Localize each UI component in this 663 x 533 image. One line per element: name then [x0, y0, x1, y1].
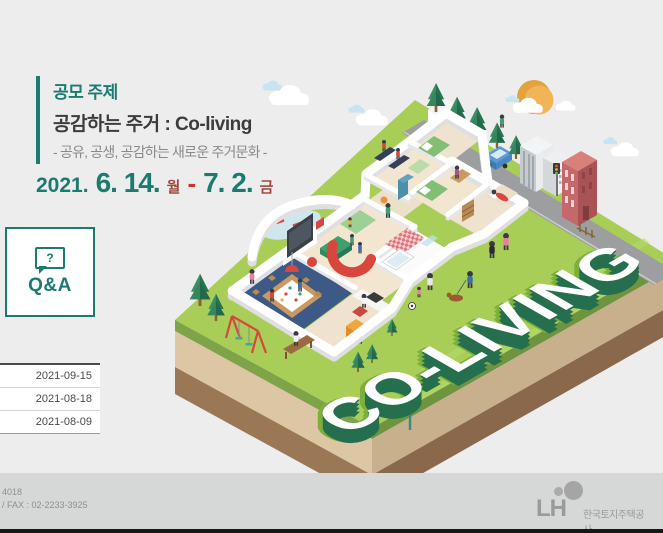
contest-subtitle: - 공유, 공생, 공감하는 새로운 주거문화 - [53, 142, 267, 162]
period-start-day: 월 [167, 176, 181, 197]
notice-row[interactable]: 2021-08-09 [0, 411, 100, 433]
lh-logo-text: LH [536, 495, 566, 523]
footer-contact: 4018 / FAX : 02-2233-3925 [2, 486, 88, 512]
contest-title: 공감하는 주거 : Co-living [53, 109, 267, 136]
lh-logo: LH 한국토지주택공사 [536, 479, 651, 525]
qa-button[interactable]: ? Q&A [5, 227, 95, 317]
coliving-poster-page: CO-LIVING [0, 0, 663, 533]
qa-button-label: Q&A [28, 275, 72, 297]
period-dash: - [187, 168, 196, 199]
question-bubble-icon: ? [35, 247, 65, 269]
lh-circles-icon [564, 481, 583, 500]
notice-date-list: 2021-09-15 2021-08-18 2021-08-09 [0, 363, 100, 434]
footer-contact-line2: / FAX : 02-2233-3925 [2, 499, 88, 512]
notice-row[interactable]: 2021-09-15 [0, 365, 100, 388]
contest-period: 2021. 6. 14. 월 - 7. 2. 금 [36, 167, 273, 199]
question-mark-glyph: ? [46, 252, 53, 264]
section-label: 공모 주제 [53, 78, 267, 103]
period-end-day: 금 [260, 176, 274, 197]
bottom-window-edge [0, 529, 663, 533]
period-start-date: 6. 14. [96, 167, 160, 199]
accent-bar [36, 76, 40, 164]
period-year: 2021. [36, 174, 89, 198]
footer-contact-line1: 4018 [2, 486, 88, 499]
footer: 4018 / FAX : 02-2233-3925 LH 한국토지주택공사 [0, 473, 663, 529]
notice-row[interactable]: 2021-08-18 [0, 388, 100, 411]
period-end-date: 7. 2. [203, 167, 252, 199]
contest-theme-block: 공모 주제 공감하는 주거 : Co-living - 공유, 공생, 공감하는… [36, 76, 267, 164]
